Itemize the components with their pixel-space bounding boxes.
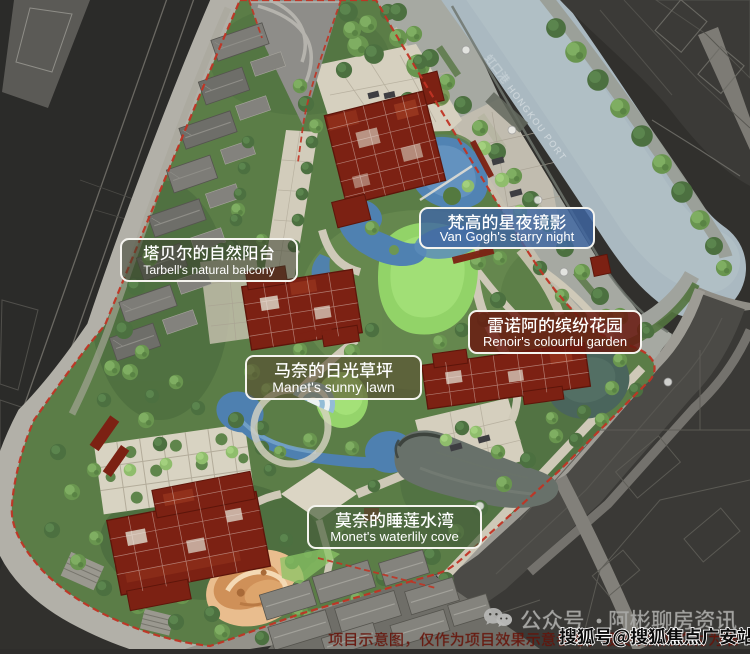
svg-text:Monet's waterlily cove: Monet's waterlily cove — [330, 529, 459, 544]
svg-text:Manet's sunny lawn: Manet's sunny lawn — [272, 379, 395, 395]
svg-text:Tarbell's natural balcony: Tarbell's natural balcony — [143, 263, 275, 277]
svg-text:Renoir's colourful garden: Renoir's colourful garden — [483, 334, 627, 349]
svg-text:Van Gogh's starry night: Van Gogh's starry night — [440, 229, 575, 244]
